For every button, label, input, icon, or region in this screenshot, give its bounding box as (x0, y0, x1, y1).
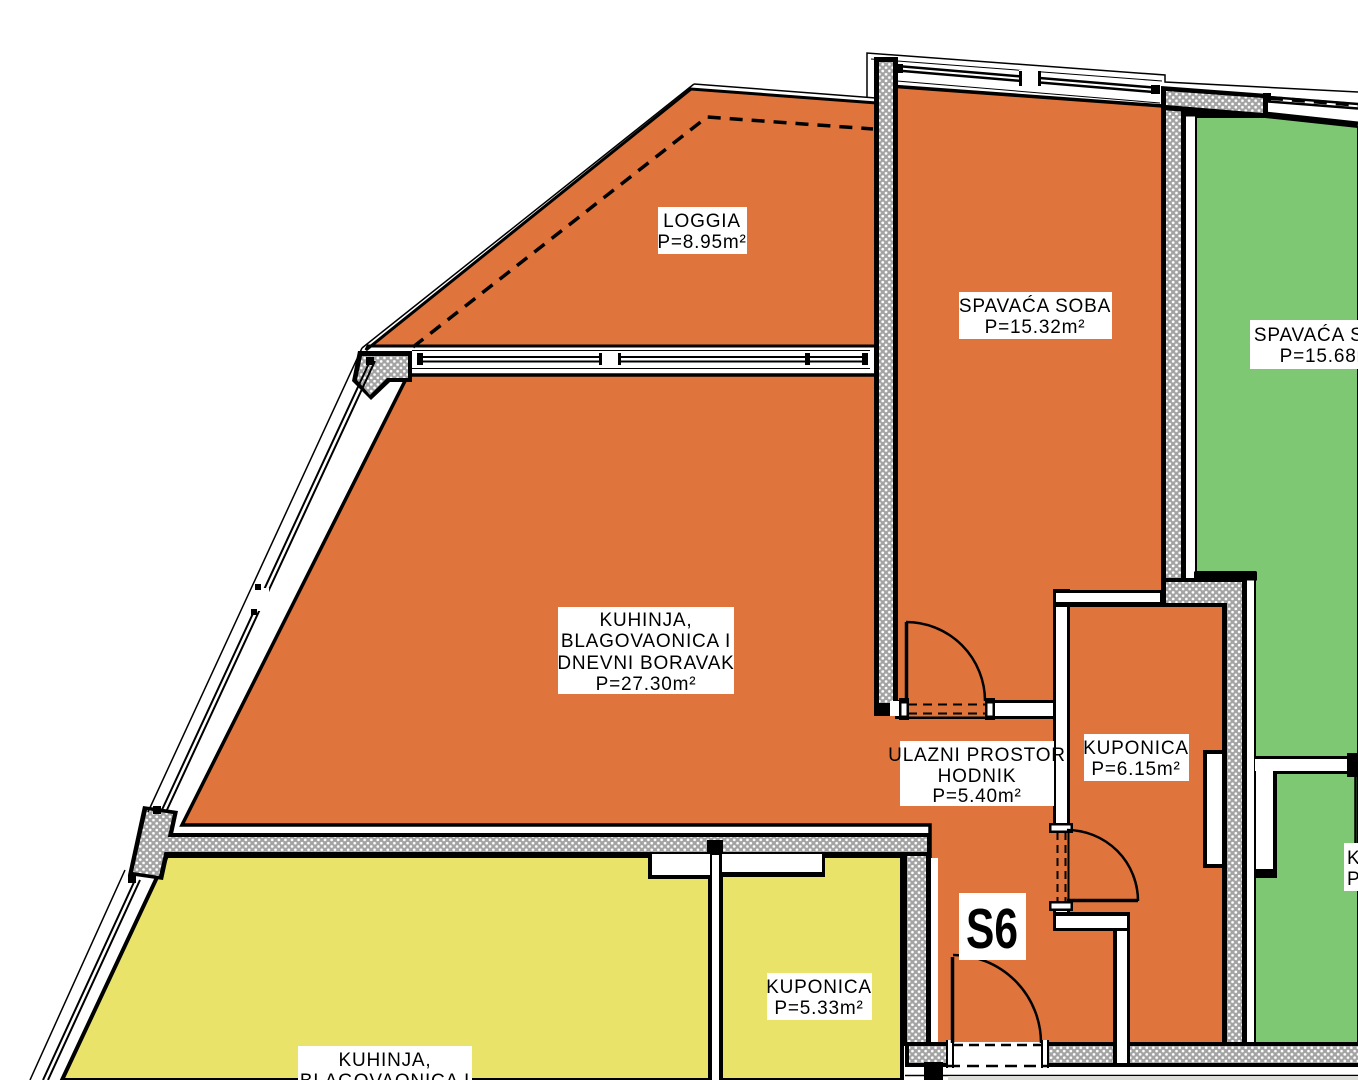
svg-text:KUPONICA: KUPONICA (1083, 738, 1189, 759)
svg-text:P=15.32m²: P=15.32m² (985, 317, 1086, 338)
svg-text:SPAVAĆA SOBA: SPAVAĆA SOBA (1254, 324, 1358, 346)
svg-text:P=5.33m²: P=5.33m² (774, 998, 863, 1019)
svg-text:P=8.95m²: P=8.95m² (657, 232, 746, 253)
svg-text:KUPAONICA: KUPAONICA (1347, 848, 1358, 869)
svg-text:KUHINJA,: KUHINJA, (339, 1050, 432, 1071)
svg-text:P=27.30m²: P=27.30m² (596, 674, 697, 695)
svg-text:SPAVAĆA SOBA: SPAVAĆA SOBA (959, 295, 1111, 317)
svg-text:DNEVNI BORAVAK: DNEVNI BORAVAK (557, 653, 734, 674)
svg-text:P=4.50m²: P=4.50m² (1347, 869, 1358, 890)
svg-text:S6: S6 (966, 897, 1018, 961)
svg-text:P=5.40m²: P=5.40m² (932, 786, 1021, 807)
svg-text:KUHINJA,: KUHINJA, (600, 610, 693, 631)
svg-text:HODNIK: HODNIK (938, 766, 1017, 787)
svg-text:P=15.68m²: P=15.68m² (1280, 346, 1358, 367)
svg-text:BLAGOVAONICA I: BLAGOVAONICA I (561, 631, 731, 652)
svg-text:KUPONICA: KUPONICA (766, 977, 872, 998)
svg-text:LOGGIA: LOGGIA (663, 211, 741, 232)
svg-text:BLAGOVAONICA I: BLAGOVAONICA I (300, 1071, 470, 1080)
svg-text:P=6.15m²: P=6.15m² (1091, 759, 1180, 780)
svg-text:ULAZNI PROSTOR: ULAZNI PROSTOR (888, 745, 1066, 766)
